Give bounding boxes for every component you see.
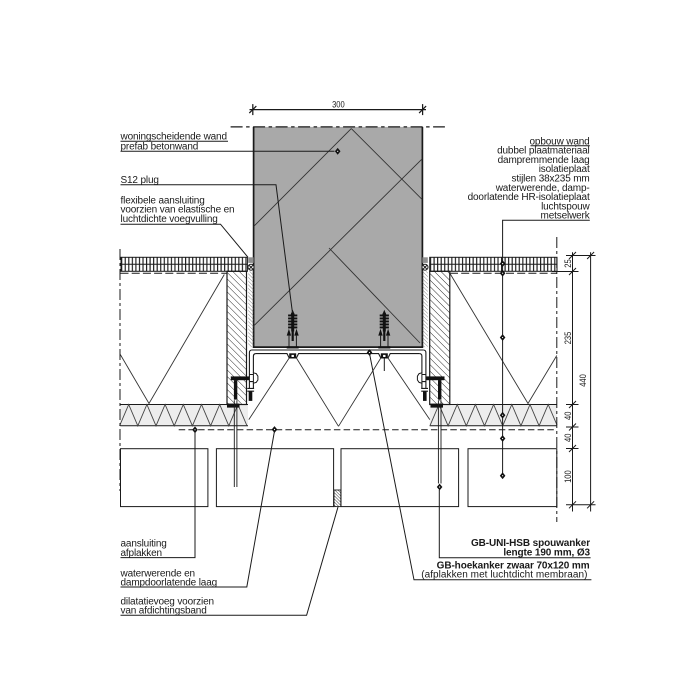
svg-text:40: 40 bbox=[563, 434, 573, 442]
svg-text:S12 plug: S12 plug bbox=[121, 175, 159, 186]
svg-text:luchtdichte voegvulling: luchtdichte voegvulling bbox=[121, 214, 218, 225]
svg-text:prefab betonwand: prefab betonwand bbox=[121, 142, 199, 153]
svg-text:235: 235 bbox=[563, 332, 573, 345]
svg-text:40: 40 bbox=[563, 412, 573, 420]
svg-text:afplakken: afplakken bbox=[121, 548, 162, 559]
svg-text:dampdoorlatende laag: dampdoorlatende laag bbox=[121, 578, 218, 589]
svg-text:lengte 190 mm, Ø3: lengte 190 mm, Ø3 bbox=[503, 547, 590, 558]
svg-text:(afplakken met luchtdicht memb: (afplakken met luchtdicht membraan) bbox=[421, 569, 587, 580]
svg-text:metselwerk: metselwerk bbox=[541, 211, 591, 222]
svg-text:300: 300 bbox=[332, 100, 345, 110]
svg-text:25: 25 bbox=[563, 259, 573, 267]
svg-text:van afdichtingsband: van afdichtingsband bbox=[121, 606, 207, 617]
svg-text:440: 440 bbox=[578, 374, 588, 387]
svg-text:100: 100 bbox=[563, 470, 573, 483]
